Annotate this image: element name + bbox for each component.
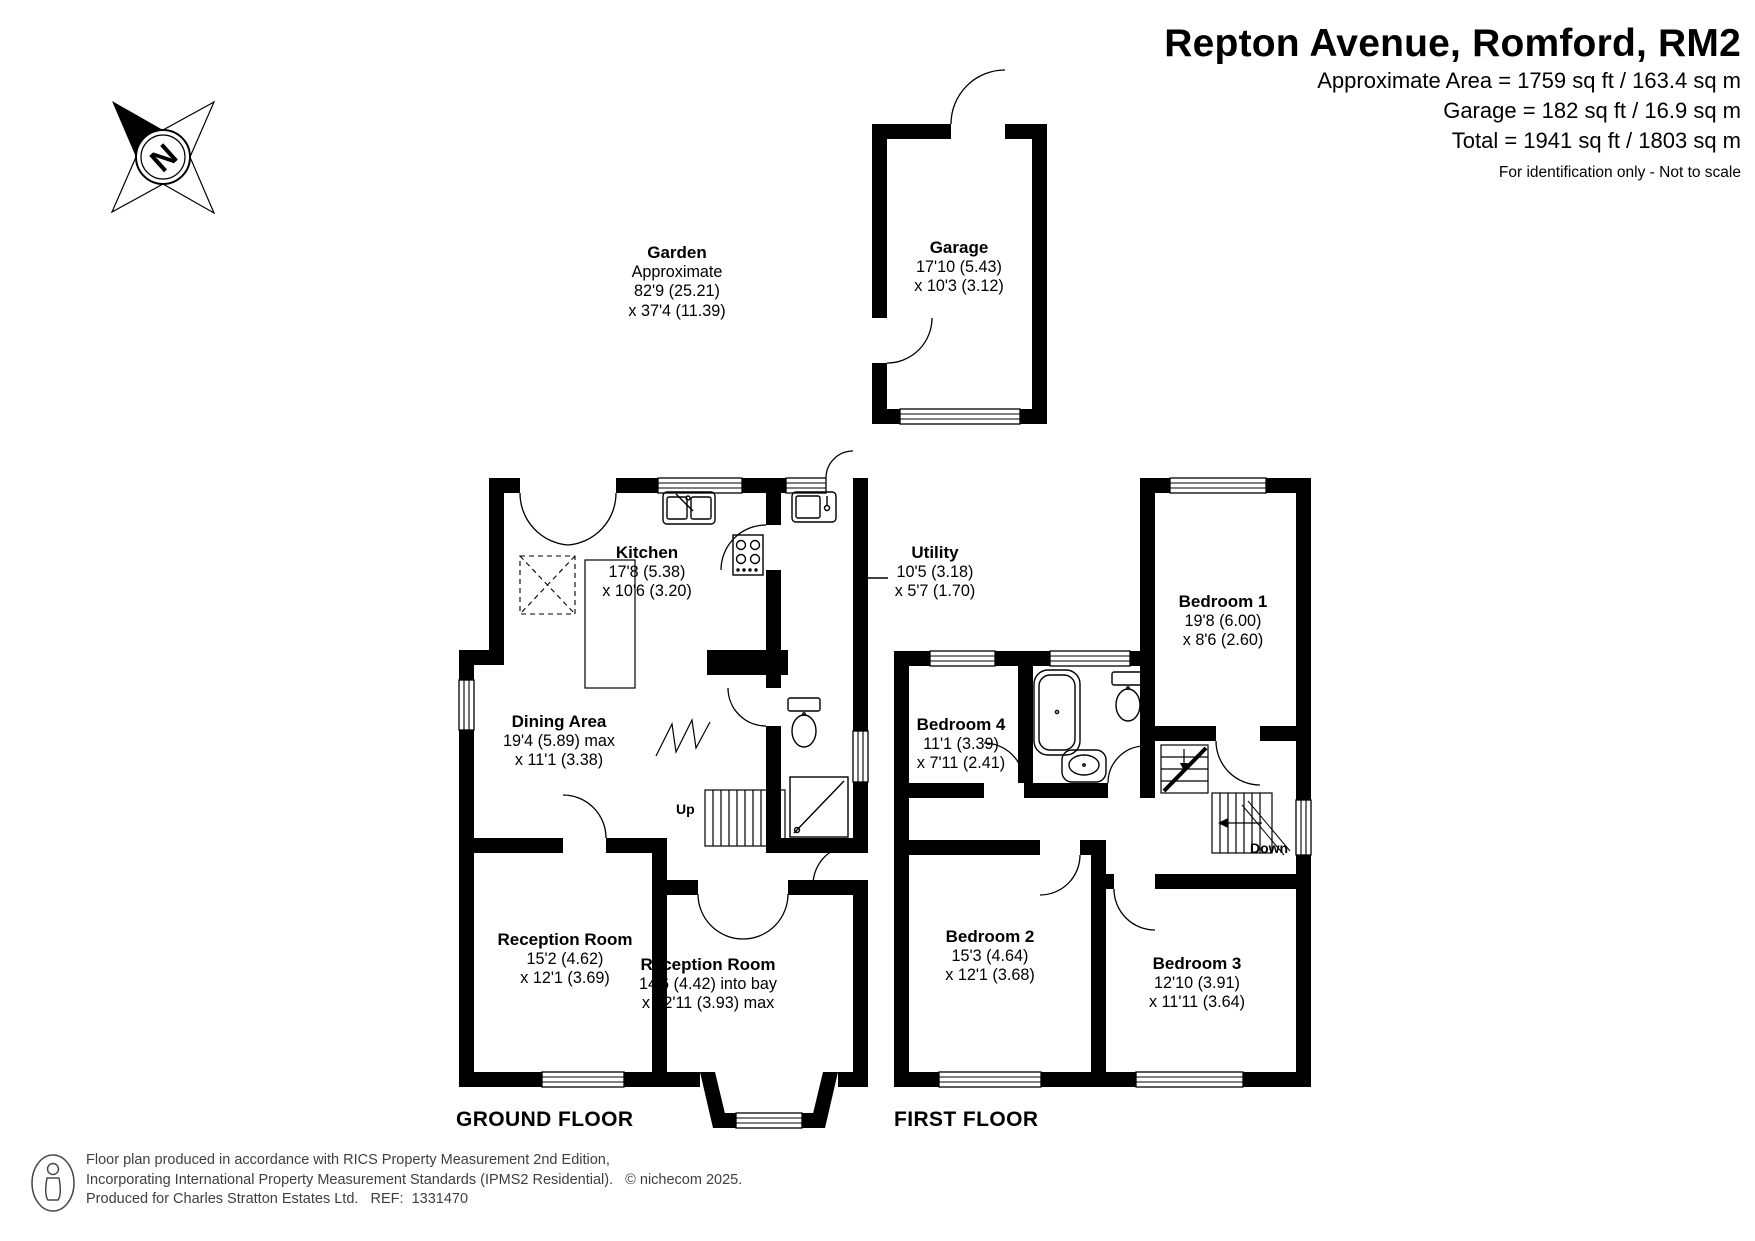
scale-disclaimer: For identification only - Not to scale (1164, 164, 1741, 182)
reception1-door-arc (563, 795, 606, 838)
approximate-area: Approximate Area = 1759 sq ft / 163.4 sq… (1164, 66, 1741, 96)
bedroom2-door-arc (1040, 855, 1080, 895)
reception2-label: Reception Room 14'6 (4.42) into bay x 12… (614, 955, 802, 1014)
person-icon (28, 1152, 78, 1216)
footer-line3: Produced for Charles Stratton Estates Lt… (86, 1190, 742, 1210)
garage-label: Garage 17'10 (5.43) x 10'3 (3.12) (879, 238, 1039, 297)
ground-floor-title: GROUND FLOOR (456, 1108, 633, 1132)
shower-fixture (790, 777, 848, 837)
french-door-left-arc (520, 493, 568, 545)
toilet-fixture-first-floor (1112, 672, 1144, 721)
bifold-doors (656, 720, 710, 756)
bedroom3-label: Bedroom 3 12'10 (3.91) x 11'11 (3.64) (1117, 954, 1277, 1013)
stairs-down-label: Down (1250, 840, 1288, 856)
footer-line1: Floor plan produced in accordance with R… (86, 1151, 742, 1171)
bedroom1-door-arc (1216, 741, 1260, 785)
french-door-right-arc (568, 493, 616, 545)
bathroom-door-arc (1108, 746, 1145, 783)
page-title: Repton Avenue, Romford, RM2 (1164, 22, 1741, 66)
utility-label: Utility 10'5 (3.18) x 5'7 (1.70) (872, 543, 998, 602)
bay-window (736, 1113, 802, 1128)
bedroom3-door-arc (1114, 889, 1155, 930)
footer-line2: Incorporating International Property Mea… (86, 1171, 742, 1191)
wc-fixtures (788, 698, 848, 837)
reception2-door-right-arc (743, 894, 788, 939)
garage-side-door-arc (887, 318, 932, 363)
utility-sink-fixture (792, 492, 836, 522)
floorplan-page: N (0, 0, 1755, 1241)
garden-label: Garden Approximate 82'9 (25.21) x 37'4 (… (597, 243, 757, 321)
bedroom1-label: Bedroom 1 19'8 (6.00) x 8'6 (2.60) (1143, 592, 1303, 651)
stairs-up-label: Up (676, 801, 695, 817)
wc-door-arc (728, 688, 766, 726)
kitchen-sink-fixture (663, 492, 715, 524)
garage-top-door-arc (951, 70, 1005, 124)
floorplan-drawing: N (0, 0, 1755, 1241)
reception2-door-left-arc (698, 894, 743, 939)
hob-fixture (733, 535, 763, 575)
bathroom-fixtures (1034, 670, 1144, 782)
kitchen-label: Kitchen 17'8 (5.38) x 10'6 (3.20) (567, 543, 727, 602)
back-door-arc (826, 451, 853, 478)
garage-area: Garage = 182 sq ft / 16.9 sq m (1164, 96, 1741, 126)
garage-window (900, 409, 1020, 424)
footer-text: Floor plan produced in accordance with R… (86, 1151, 742, 1210)
total-area: Total = 1941 sq ft / 1803 sq m (1164, 126, 1741, 156)
stairs-down (1161, 745, 1290, 855)
bedroom4-label: Bedroom 4 11'1 (3.39) x 7'11 (2.41) (881, 715, 1041, 774)
header: Repton Avenue, Romford, RM2 Approximate … (1164, 22, 1741, 182)
first-floor-title: FIRST FLOOR (894, 1108, 1038, 1132)
toilet-fixture (788, 698, 820, 747)
compass-north-icon: N (112, 101, 214, 213)
dining-area-label: Dining Area 19'4 (5.89) max x 11'1 (3.38… (479, 712, 639, 771)
bedroom2-label: Bedroom 2 15'3 (4.64) x 12'1 (3.68) (910, 927, 1070, 986)
